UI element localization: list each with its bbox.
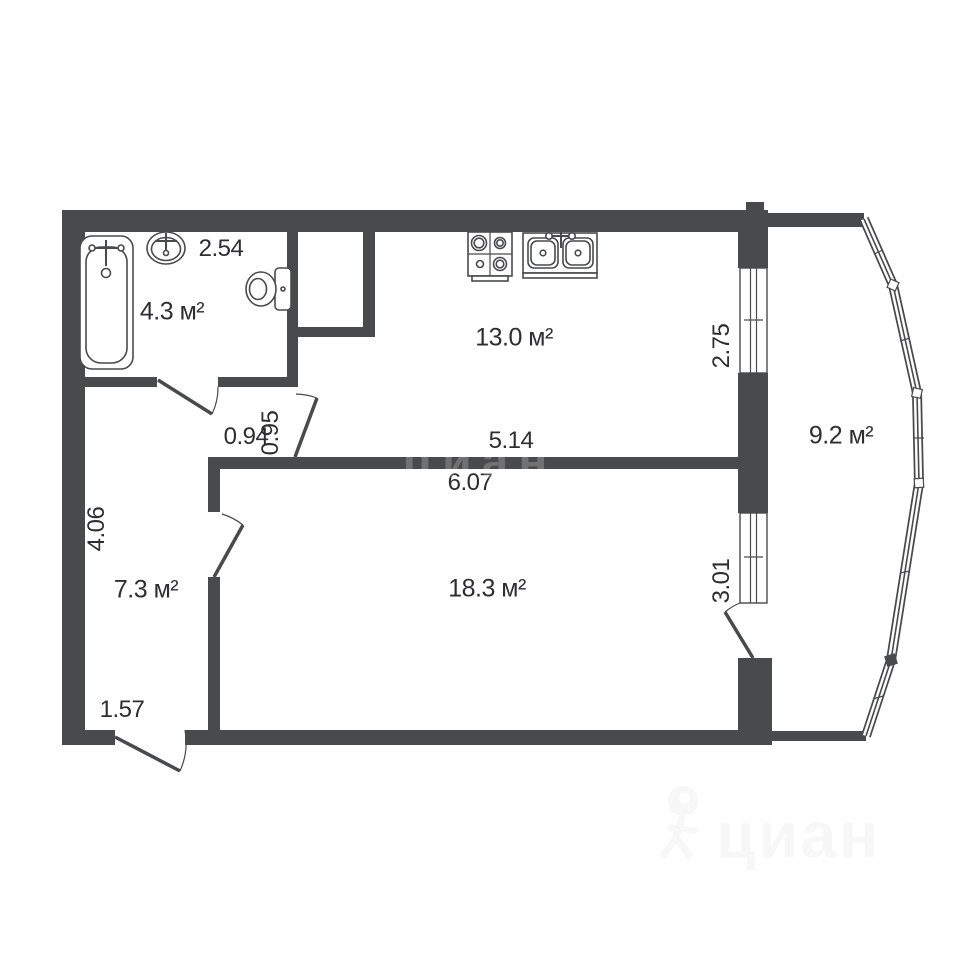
watermark-center: циан (403, 435, 558, 490)
bathroom-sink-icon (147, 232, 185, 264)
bathtub-icon (80, 236, 133, 369)
kitchen-door (295, 394, 317, 457)
room-label-kitchen: 13.0 м² (475, 324, 553, 353)
balcony-glazing (864, 219, 924, 736)
dim-label-bathroom-width: 2.54 (199, 235, 244, 263)
floor-plan: 4.3 м² 13.0 м² 7.3 м² 18.3 м² 9.2 м² 2.5… (0, 0, 960, 960)
room-label-bathroom: 4.3 м² (140, 298, 204, 327)
dim-label-living-depth: 3.01 (708, 559, 736, 604)
room-label-balcony: 9.2 м² (809, 422, 873, 451)
toilet-icon (246, 268, 291, 310)
room-label-hallway: 7.3 м² (114, 576, 178, 605)
dim-label-passage-b: 0.95 (257, 411, 285, 456)
watermark-brand: циан (716, 798, 881, 872)
kitchen-window (740, 268, 767, 373)
living-window (740, 513, 767, 603)
dim-label-hallway-depth: 4.06 (83, 507, 111, 552)
dim-label-kitchen-depth: 2.75 (708, 324, 736, 369)
entrance-door (115, 730, 186, 771)
dim-label-hallway-width: 1.57 (100, 696, 145, 724)
bathroom-door (158, 380, 218, 414)
kitchen-sink-icon (523, 226, 597, 278)
stove-icon (468, 232, 512, 281)
living-room-door (214, 514, 243, 577)
balcony-door (725, 603, 753, 658)
watermark-person-icon (662, 786, 698, 857)
room-label-living-room: 18.3 м² (448, 575, 526, 604)
